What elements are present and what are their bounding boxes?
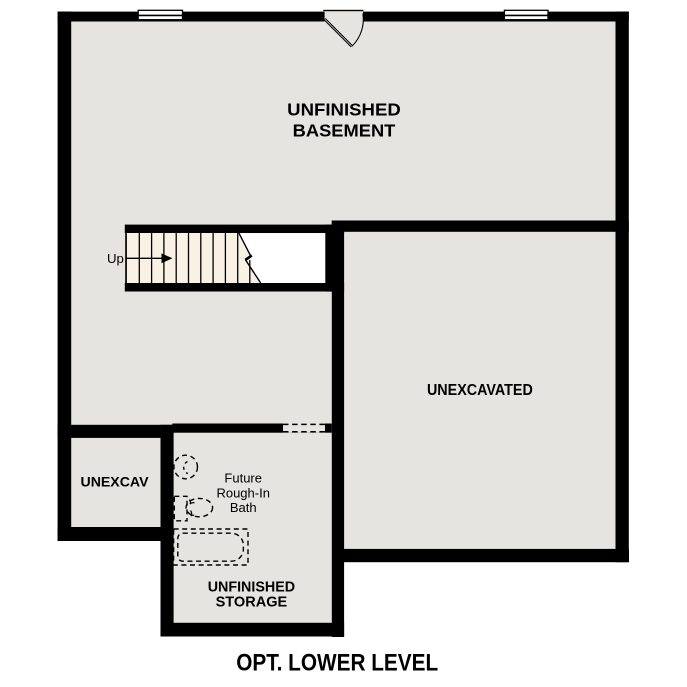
svg-text:STORAGE: STORAGE xyxy=(216,594,288,611)
svg-text:UNFINISHED: UNFINISHED xyxy=(287,100,401,120)
svg-text:Bath: Bath xyxy=(230,500,257,515)
svg-text:BASEMENT: BASEMENT xyxy=(293,121,396,141)
svg-text:Future: Future xyxy=(224,471,262,486)
svg-text:UNEXCAVATED: UNEXCAVATED xyxy=(427,382,533,399)
svg-text:UNEXCAV: UNEXCAV xyxy=(81,474,149,489)
svg-text:Up: Up xyxy=(107,251,124,266)
svg-text:OPT. LOWER LEVEL: OPT. LOWER LEVEL xyxy=(236,650,438,677)
svg-text:Rough-In: Rough-In xyxy=(216,486,269,501)
